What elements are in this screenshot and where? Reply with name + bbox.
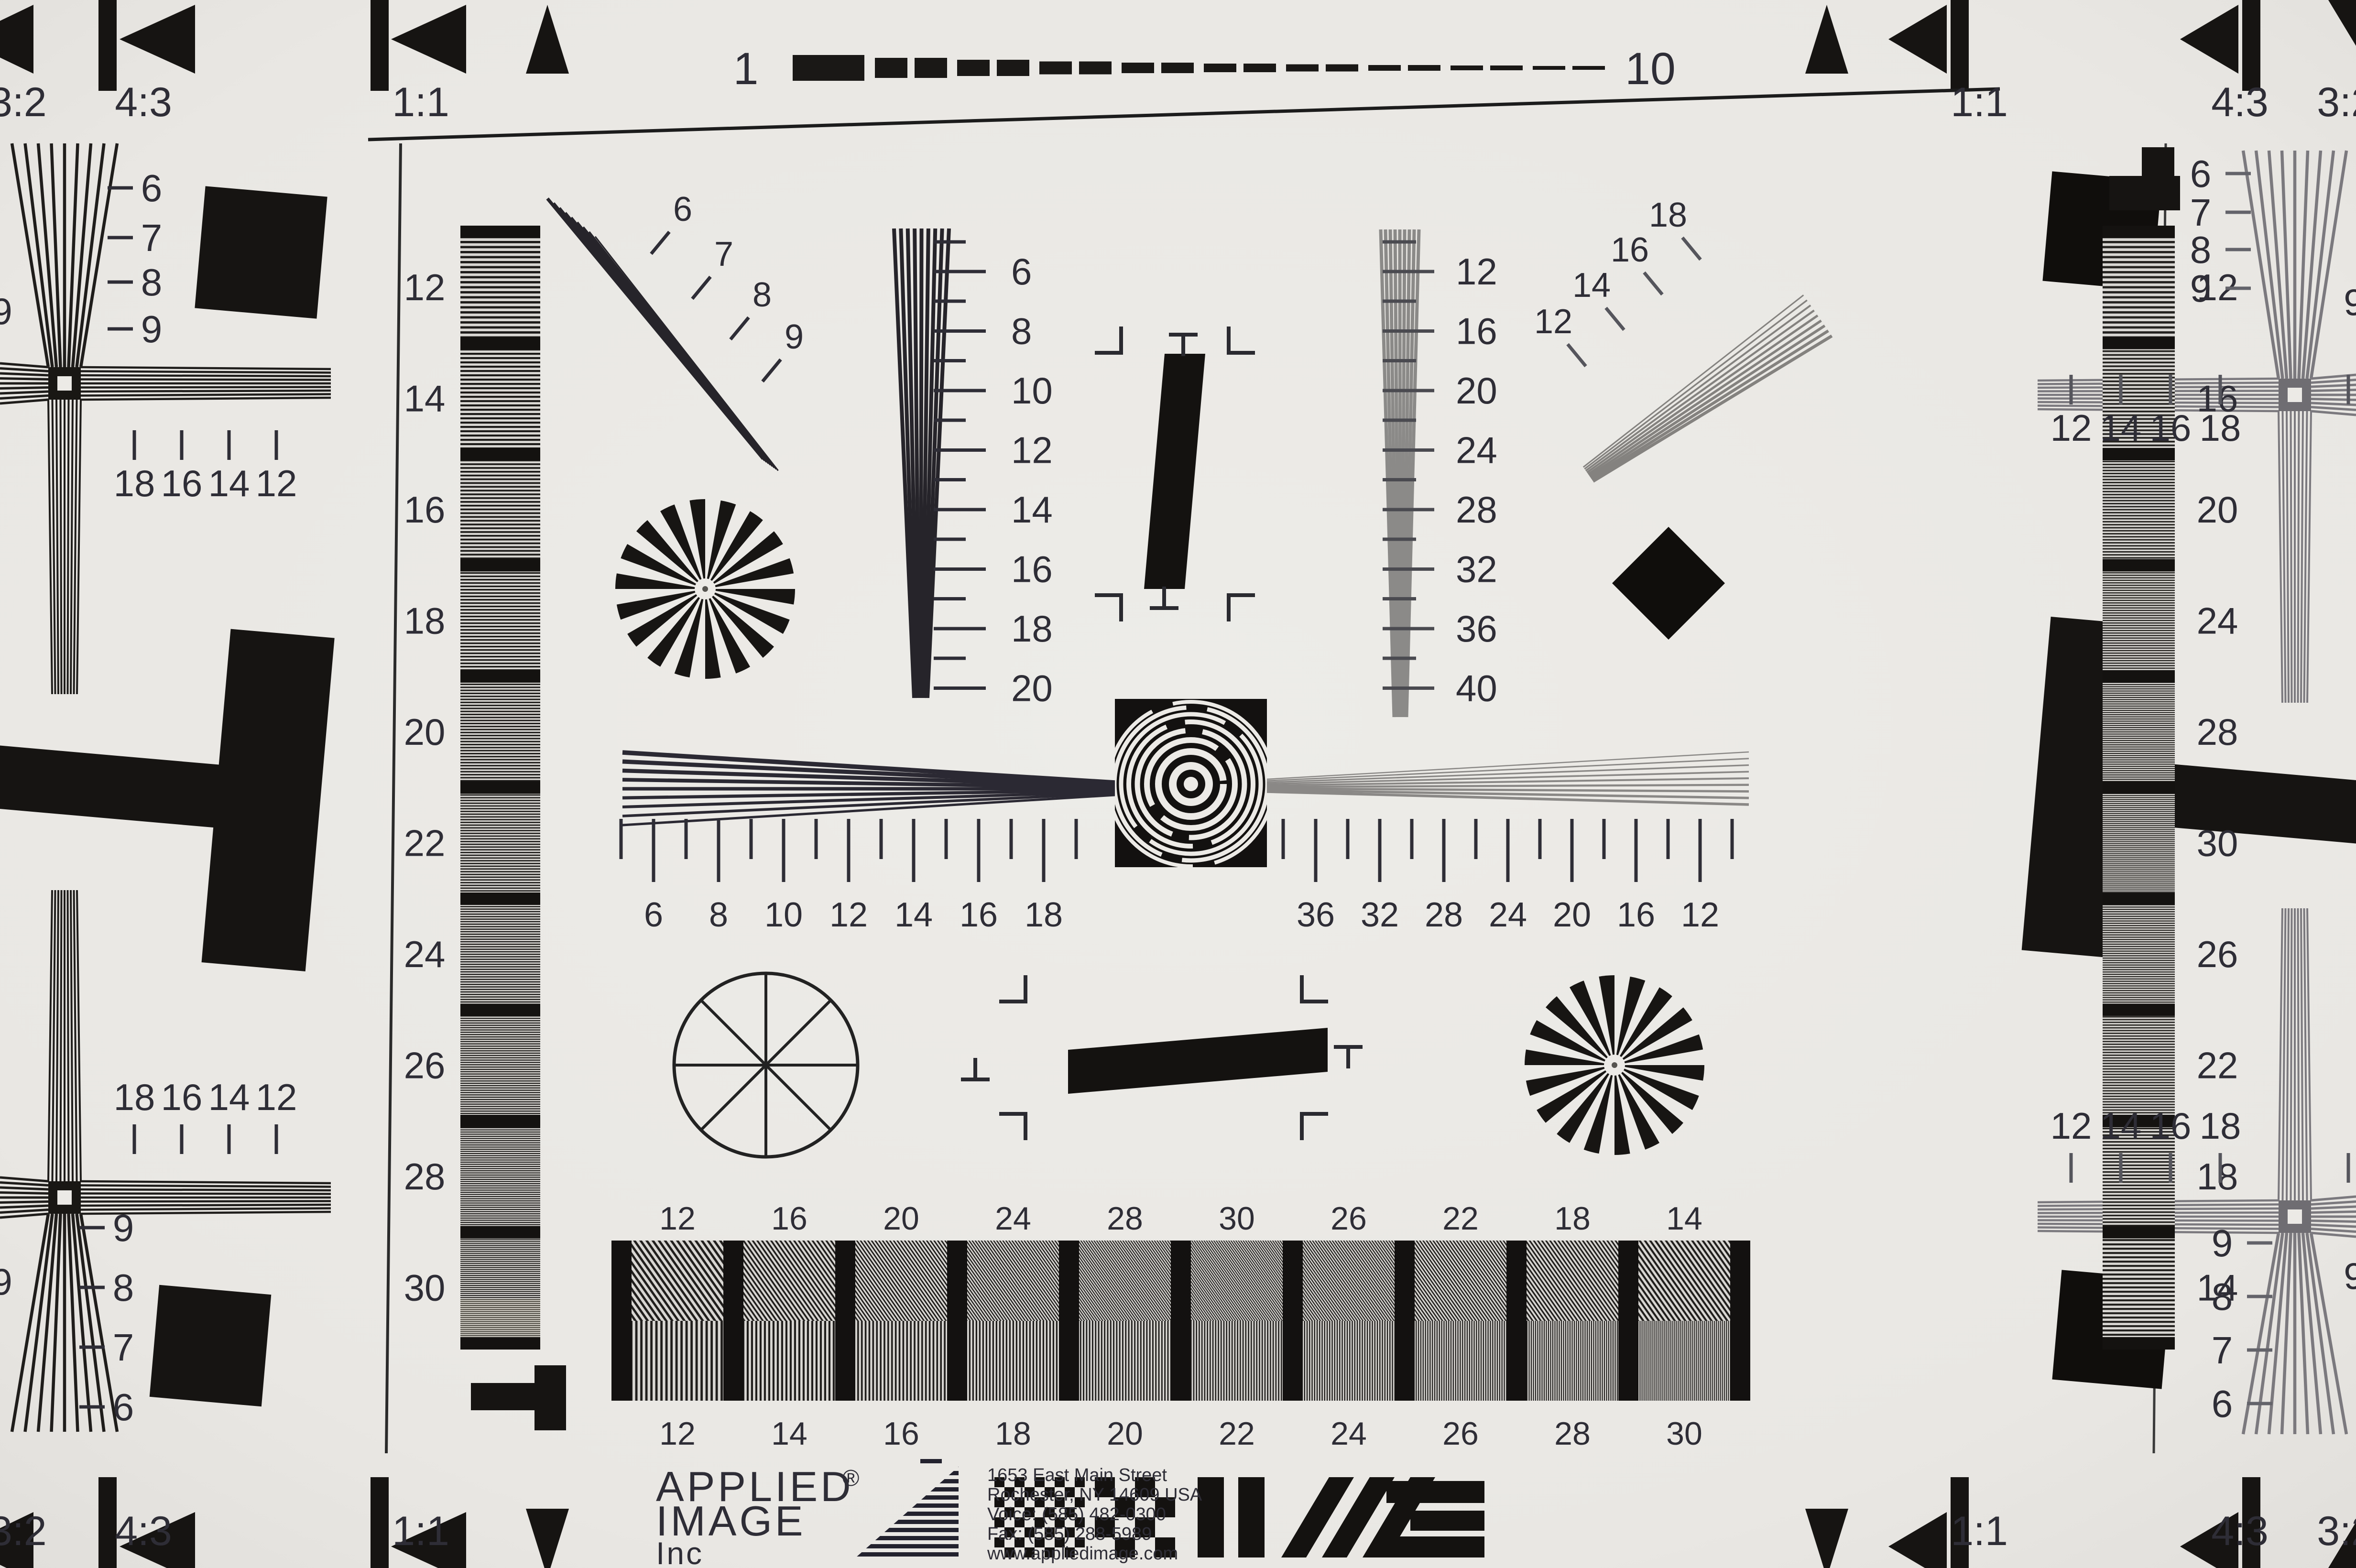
block-cell-vertical — [1181, 1321, 1293, 1401]
bar-segment — [2103, 788, 2175, 899]
bar-separator — [460, 1226, 540, 1239]
aspect-bar — [98, 1477, 117, 1568]
block-separator — [835, 1241, 855, 1401]
aspect-bar — [371, 1477, 389, 1568]
block-separator — [723, 1241, 743, 1401]
aspect-bar — [2242, 0, 2260, 91]
aspect-ratio-label: 3:2 — [2317, 79, 2356, 125]
block-separator — [1730, 1241, 1750, 1401]
corner-tick-label: 16 — [161, 462, 203, 504]
center-right-label: 12 — [1681, 896, 1719, 934]
block-cell-diagonal — [1405, 1241, 1516, 1321]
block-bottom-label: 30 — [1666, 1416, 1702, 1452]
right-wedge-label: 16 — [1456, 310, 1497, 352]
bar-top-marker — [2142, 147, 2174, 178]
address-line: 1653 East Main Street — [987, 1465, 1167, 1485]
ruler-dash — [1451, 65, 1483, 70]
block-bottom-label: 18 — [995, 1416, 1031, 1452]
right-wedge-label: 20 — [1456, 370, 1497, 412]
left-bar-label: 16 — [404, 489, 446, 531]
edge-cut-digit: 9 — [2344, 281, 2356, 323]
ruler-dash — [1490, 65, 1523, 70]
fan-line — [68, 400, 69, 694]
bar-segment — [460, 343, 540, 455]
right-bar-label: 22 — [2197, 1045, 2238, 1087]
right-wedge-label: 40 — [1456, 667, 1497, 709]
diag-label: 16 — [1611, 231, 1649, 269]
aspect-ratio-label: 4:3 — [2211, 79, 2269, 125]
ruler-dash — [1204, 64, 1236, 72]
block-separator — [1283, 1241, 1303, 1401]
block-cell-vertical — [1628, 1321, 1740, 1401]
right-bar-label: 20 — [2197, 489, 2238, 531]
block-bottom-label: 14 — [771, 1416, 807, 1452]
bar-segment — [460, 676, 540, 788]
center-right-label: 24 — [1489, 896, 1527, 934]
ruler-dash — [1572, 66, 1605, 70]
fan-line — [2311, 1212, 2356, 1213]
bar-separator — [460, 559, 540, 572]
corner-tick-label: 12 — [256, 1076, 297, 1118]
block-cell-vertical — [1069, 1321, 1181, 1401]
fan-line — [0, 388, 48, 389]
rotated-square-patch — [195, 186, 327, 318]
block-cell-diagonal — [622, 1241, 733, 1321]
diag-label: 8 — [753, 276, 772, 314]
block-top-label: 26 — [1331, 1200, 1367, 1237]
horizontal-bar — [1410, 1511, 1484, 1531]
bar-segment — [2103, 566, 2175, 677]
block-bottom-label: 26 — [1442, 1416, 1479, 1452]
aspect-ratio-label: 1:1 — [392, 1508, 449, 1554]
ruler-dash — [997, 60, 1029, 76]
center-left-label: 12 — [829, 896, 868, 934]
block-cell-diagonal — [957, 1241, 1069, 1321]
bar-separator — [460, 226, 540, 238]
resolution-test-chart: 1103:23:24:34:31:11:11:11:14:34:33:23:21… — [0, 0, 2356, 1568]
left-bar-label: 26 — [404, 1045, 446, 1087]
block-separator — [611, 1241, 632, 1401]
block-cell-vertical — [845, 1321, 957, 1401]
block-cell-diagonal — [1069, 1241, 1181, 1321]
corner-stack-label: 7 — [2190, 191, 2212, 234]
fan-line — [61, 890, 62, 1181]
left-bar-label: 20 — [404, 711, 446, 753]
right-wedge-label: 24 — [1456, 429, 1497, 471]
corner-tick-label: 16 — [2150, 1105, 2192, 1147]
logo-dash — [920, 1459, 942, 1463]
center-left-label: 16 — [960, 896, 998, 934]
diag-label: 9 — [785, 318, 804, 356]
block-top-label: 30 — [1219, 1200, 1255, 1237]
right-wedge-label: 28 — [1456, 489, 1497, 531]
left-wedge-label: 14 — [1011, 489, 1053, 531]
corner-stack-label: 9 — [141, 308, 163, 350]
aspect-ratio-label: 4:3 — [115, 79, 172, 125]
left-bar-label: 30 — [404, 1267, 446, 1309]
aspect-ratio-label: 3:2 — [0, 1508, 47, 1554]
corner-tick-label: 16 — [161, 1076, 203, 1118]
ruler-bar — [793, 55, 864, 81]
aspect-bar — [1951, 0, 1969, 91]
corner-stack-label: 6 — [141, 167, 163, 209]
bar-segment — [460, 899, 540, 1010]
corner-stack-label: 6 — [2212, 1383, 2233, 1425]
aspect-ratio-label: 4:3 — [115, 1508, 172, 1554]
block-cell-vertical — [1293, 1321, 1405, 1401]
bar-separator — [460, 448, 540, 460]
edge-cut-digit: 9 — [0, 290, 12, 332]
ruler-dash — [1286, 65, 1319, 72]
block-separator — [1618, 1241, 1638, 1401]
diag-label: 12 — [1534, 303, 1572, 341]
block-cell-diagonal — [1628, 1241, 1740, 1321]
center-right-label: 16 — [1617, 896, 1655, 934]
bar-end-marker — [534, 1365, 566, 1430]
starburst-center-dot — [702, 586, 708, 592]
bar-separator — [2103, 559, 2175, 572]
diag-label: 6 — [673, 190, 692, 229]
address-line: Rochester, NY 14609 USA — [987, 1485, 1202, 1505]
center-right-label: 20 — [1553, 896, 1591, 934]
block-bottom-label: 20 — [1107, 1416, 1143, 1452]
edge-cut-digit: 9 — [0, 1261, 12, 1303]
block-bottom-label: 12 — [659, 1416, 696, 1452]
right-wedge-label: 12 — [1456, 250, 1497, 293]
bar-segment — [460, 232, 540, 343]
corner-tick-label: 14 — [208, 1076, 250, 1118]
edge-cut-digit: 9 — [2344, 1255, 2356, 1297]
corner-stack-label: 7 — [2212, 1329, 2233, 1372]
moire-tint — [460, 1299, 540, 1343]
bar-segment — [460, 788, 540, 899]
bar-separator — [460, 1004, 540, 1016]
aspect-ratio-label: 1:1 — [1951, 79, 2008, 125]
bar-separator — [2103, 893, 2175, 905]
left-wedge-label: 16 — [1011, 548, 1053, 590]
corner-stack-label: 7 — [113, 1326, 134, 1369]
bar-segment — [2103, 454, 2175, 566]
ruler-dash — [1368, 65, 1401, 71]
ruler-dash — [1243, 64, 1276, 72]
center-right-label: 36 — [1297, 896, 1335, 934]
block-cell-diagonal — [1516, 1241, 1628, 1321]
corner-stack-label: 9 — [113, 1207, 134, 1249]
right-bar-label: 26 — [2197, 933, 2238, 975]
corner-tick-label: 18 — [114, 462, 155, 504]
fan-line — [0, 1202, 48, 1203]
bar-separator — [2103, 337, 2175, 349]
diag-label: 7 — [714, 235, 733, 273]
fan-center-hole — [57, 376, 72, 391]
right-bar-label: 28 — [2197, 711, 2238, 753]
bar-segment — [2103, 676, 2175, 788]
horizontal-bar — [1386, 1481, 1484, 1503]
left-wedge-label: 12 — [1011, 429, 1053, 471]
starburst-center-dot — [1612, 1062, 1617, 1068]
fan-line — [2291, 411, 2292, 703]
ruler-end-label: 10 — [1625, 44, 1676, 94]
left-bar-label: 22 — [404, 822, 446, 864]
right-wedge-label: 32 — [1456, 548, 1497, 590]
aspect-bar — [98, 0, 117, 91]
left-wedge-label: 8 — [1011, 310, 1032, 352]
corner-tick-label: 14 — [208, 462, 250, 504]
address-line: Voice: (585) 482-0300 — [987, 1504, 1166, 1524]
fan-line — [81, 1201, 331, 1202]
block-separator — [1506, 1241, 1527, 1401]
left-bar-label: 12 — [404, 266, 446, 308]
block-top-label: 12 — [659, 1200, 696, 1237]
corner-stack-label: 6 — [113, 1386, 134, 1428]
center-right-label: 28 — [1425, 896, 1463, 934]
bar-segment — [460, 1010, 540, 1122]
left-wedge-label: 18 — [1011, 608, 1053, 650]
block-bottom-label: 22 — [1219, 1416, 1255, 1452]
block-top-label: 24 — [995, 1200, 1031, 1237]
left-bar-label: 18 — [404, 600, 446, 642]
right-bar-label: 24 — [2197, 600, 2238, 642]
aspect-bar — [371, 0, 389, 91]
brand-name: Inc — [656, 1535, 704, 1568]
corner-stack-label: 9 — [2212, 1222, 2233, 1264]
ruler-dash — [1079, 62, 1112, 75]
fan-center-hole — [2288, 1209, 2302, 1224]
ruler-dash — [1408, 65, 1440, 71]
left-bar-label: 24 — [404, 933, 446, 975]
left-bar-label: 14 — [404, 378, 446, 420]
bar-separator — [460, 670, 540, 683]
fan-line — [81, 1194, 331, 1194]
bar-separator — [460, 782, 540, 794]
block-cell-vertical — [622, 1321, 733, 1401]
right-wedge-label: 36 — [1456, 608, 1497, 650]
fan-line — [81, 380, 331, 380]
wedge-line — [921, 229, 922, 698]
bar-top-marker — [2109, 176, 2180, 210]
bar-separator — [460, 1115, 540, 1127]
center-left-label: 6 — [644, 896, 663, 934]
bottom-frequency-block — [611, 1241, 1750, 1401]
address-line: Fax: (585) 288-5989 — [987, 1524, 1152, 1544]
block-bottom-label: 24 — [1331, 1416, 1367, 1452]
aspect-ratio-label: 3:2 — [2317, 1508, 2356, 1554]
bar-segment — [460, 1121, 540, 1232]
bar-separator — [2103, 1004, 2175, 1016]
fan-line — [81, 371, 331, 373]
left-wedge-label: 10 — [1011, 370, 1053, 412]
bar-separator — [2103, 670, 2175, 683]
block-top-label: 28 — [1107, 1200, 1143, 1237]
fan-line — [81, 1205, 331, 1206]
corner-tick-label: 18 — [2200, 1105, 2241, 1147]
block-top-label: 22 — [1442, 1200, 1479, 1237]
block-separator — [1059, 1241, 1079, 1401]
right-bar-label: 18 — [2197, 1155, 2238, 1198]
corner-tick-label: 14 — [2100, 1105, 2142, 1147]
block-top-label: 16 — [771, 1200, 807, 1237]
corner-tick-label: 14 — [2100, 407, 2142, 449]
ruler-dash — [1533, 66, 1565, 70]
fan-line — [81, 387, 331, 388]
aspect-ratio-label: 1:1 — [1951, 1508, 2008, 1554]
center-left-label: 8 — [709, 896, 728, 934]
diag-label: 14 — [1572, 266, 1611, 305]
fan-line — [2311, 1221, 2356, 1222]
ruler-dash — [1161, 63, 1194, 73]
center-left-label: 14 — [894, 896, 933, 934]
fan-line — [81, 375, 331, 376]
bar-separator — [2103, 448, 2175, 460]
ruler-dash — [1122, 63, 1154, 73]
ruler-dash — [1326, 65, 1358, 72]
fan-line — [81, 1189, 331, 1190]
vertical-bar — [1238, 1477, 1265, 1557]
bar-separator — [2103, 782, 2175, 794]
corner-tick-label: 12 — [256, 462, 297, 504]
bar-segment — [2103, 1232, 2175, 1344]
block-cell-diagonal — [733, 1241, 845, 1321]
corner-stack-label: 8 — [113, 1266, 134, 1309]
ruler-dash — [1039, 62, 1072, 75]
bar-separator — [2103, 1337, 2175, 1350]
block-cell-vertical — [957, 1321, 1069, 1401]
ruler-start-label: 1 — [733, 44, 759, 94]
fan-center-hole — [2288, 388, 2302, 402]
block-top-label: 20 — [883, 1200, 919, 1237]
block-cell-diagonal — [845, 1241, 957, 1321]
corner-stack-label: 7 — [141, 217, 163, 259]
fan-line — [0, 379, 48, 380]
aspect-ratio-label: 1:1 — [392, 79, 449, 125]
bar-separator — [2103, 1226, 2175, 1239]
bar-separator — [460, 337, 540, 349]
left-wedge-label: 20 — [1011, 667, 1053, 709]
block-separator — [1171, 1241, 1191, 1401]
bar-end-marker — [471, 1383, 543, 1410]
corner-tick-label: 16 — [2150, 407, 2192, 449]
bar-separator — [460, 893, 540, 905]
block-top-label: 14 — [1666, 1200, 1702, 1237]
fan-line — [68, 890, 69, 1181]
corner-stack-label: 8 — [2190, 229, 2212, 271]
fan-line — [61, 400, 62, 694]
corner-stack-label: 6 — [2190, 152, 2212, 195]
block-top-label: 18 — [1554, 1200, 1591, 1237]
fan-line — [2298, 908, 2299, 1200]
bar-segment — [460, 454, 540, 566]
block-separator — [947, 1241, 967, 1401]
fan-line — [81, 394, 331, 396]
fan-line — [2291, 908, 2292, 1200]
left-wedge-label: 6 — [1011, 250, 1032, 293]
right-frequency-bar — [2103, 147, 2180, 1350]
corner-stack-label: 8 — [2212, 1275, 2233, 1318]
bar-segment — [2103, 232, 2175, 343]
block-cell-vertical — [733, 1321, 845, 1401]
bar-separator — [460, 1337, 540, 1350]
right-bar-label: 30 — [2197, 822, 2238, 864]
center-left-label: 18 — [1025, 896, 1063, 934]
corner-stack-label: 9 — [2190, 267, 2212, 310]
block-bottom-label: 28 — [1554, 1416, 1591, 1452]
left-bar-label: 28 — [404, 1155, 446, 1198]
ring-core — [1184, 777, 1198, 791]
block-cell-diagonal — [1293, 1241, 1405, 1321]
center-right-label: 32 — [1361, 896, 1399, 934]
diag-label: 18 — [1649, 196, 1687, 234]
corner-tick-label: 18 — [114, 1076, 155, 1118]
ruler-dash — [957, 60, 990, 76]
horizontal-bar — [1386, 1536, 1484, 1557]
fan-center-hole — [57, 1190, 72, 1205]
corner-tick-label: 12 — [2051, 407, 2092, 449]
corner-tick-label: 12 — [2051, 1105, 2092, 1147]
block-cell-vertical — [1405, 1321, 1516, 1401]
registered-mark-icon: ® — [842, 1466, 859, 1491]
corner-tick-label: 18 — [2200, 407, 2241, 449]
fan-line — [81, 1186, 331, 1187]
fan-line — [81, 391, 331, 392]
block-cell-diagonal — [1181, 1241, 1293, 1321]
block-bottom-label: 16 — [883, 1416, 919, 1452]
rotated-square-patch — [150, 1285, 272, 1407]
bar-segment — [2103, 899, 2175, 1010]
aspect-ratio-label: 4:3 — [2211, 1508, 2269, 1554]
address-line: www.appliedimage.com — [987, 1544, 1178, 1564]
block-separator — [1395, 1241, 1415, 1401]
fan-line — [0, 1193, 48, 1194]
bar-separator — [2103, 226, 2175, 238]
center-left-label: 10 — [764, 896, 803, 934]
bar-segment — [460, 566, 540, 677]
block-cell-vertical — [1516, 1321, 1628, 1401]
corner-stack-label: 8 — [141, 261, 163, 304]
ruler-dash — [915, 58, 947, 78]
aspect-ratio-label: 3:2 — [0, 79, 47, 125]
test-chart-photo: 1103:23:24:34:31:11:11:11:14:34:33:23:21… — [0, 0, 2356, 1568]
ruler-dash — [875, 58, 907, 78]
fan-line — [2298, 411, 2299, 703]
